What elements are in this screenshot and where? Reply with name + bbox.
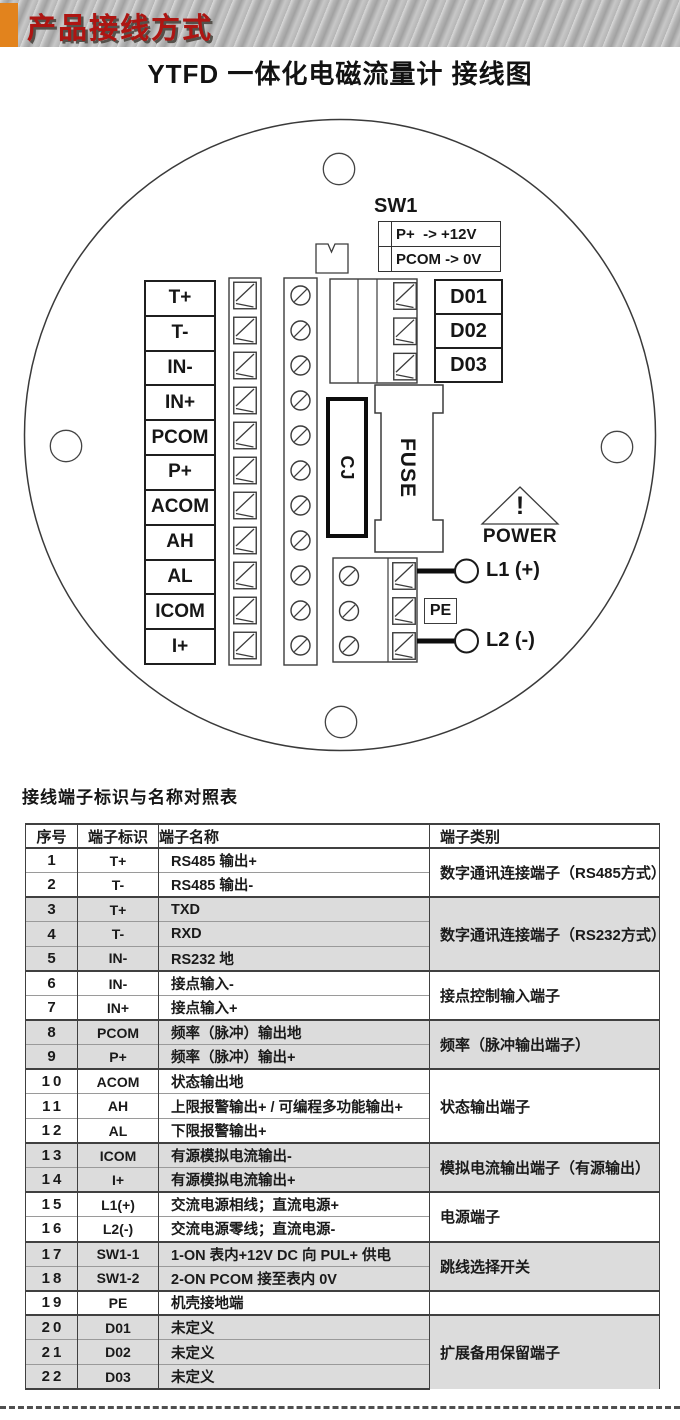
screw-terminal-icon (291, 496, 310, 515)
terminal-label: T+ (146, 282, 214, 315)
terminal-name-cell: 2-ON PCOM 接至表内 0V (159, 1266, 430, 1291)
row-number-cell: 12 (26, 1119, 78, 1144)
terminal-id-cell: L2(-) (78, 1217, 159, 1242)
row-number-cell: 9 (26, 1045, 78, 1070)
terminal-name-cell: 频率（脉冲）输出地 (159, 1020, 430, 1045)
terminal-name-cell: 未定义 (159, 1364, 430, 1389)
row-number-cell: 4 (26, 922, 78, 947)
terminal-id-cell: ACOM (78, 1069, 159, 1094)
terminal-category-cell: 扩展备用保留端子 (430, 1315, 660, 1389)
table-row: 10ACOM状态输出地状态输出端子 (26, 1069, 660, 1094)
sw1-legend-spacer (379, 247, 392, 271)
terminal-label: AH (146, 524, 214, 559)
terminal-label: IN- (146, 350, 214, 385)
row-number-cell: 20 (26, 1315, 78, 1340)
row-number-cell: 17 (26, 1242, 78, 1267)
clamp-contact-icon (393, 563, 416, 590)
table-row: 20D01未定义扩展备用保留端子 (26, 1315, 660, 1340)
clamp-contact-icon (394, 318, 417, 345)
terminal-name-cell: 交流电源相线；直流电源+ (159, 1192, 430, 1217)
table-row: 1T+RS485 输出+数字通讯连接端子（RS485方式） (26, 848, 660, 873)
terminal-label: IN+ (146, 384, 214, 419)
column-header: 端子类别 (430, 824, 660, 848)
clamp-contact-icon (234, 352, 257, 379)
l1-ring-terminal (455, 560, 478, 583)
mounting-hole-left (50, 430, 81, 461)
table-row: 19PE机壳接地端 (26, 1291, 660, 1316)
terminal-name-cell: 机壳接地端 (159, 1291, 430, 1316)
terminal-id-cell: PCOM (78, 1020, 159, 1045)
table-row: 17SW1-11-ON 表内+12V DC 向 PUL+ 供电跳线选择开关 (26, 1242, 660, 1267)
column-header: 端子标识 (78, 824, 159, 848)
cj-connector-label: CJ (337, 418, 357, 518)
terminal-name-cell: RS232 地 (159, 946, 430, 971)
terminal-name-cell: RS485 输出+ (159, 848, 430, 873)
l2-ring-terminal (455, 630, 478, 653)
clamp-contact-icon (234, 562, 257, 589)
terminal-name-cell: TXD (159, 897, 430, 922)
row-number-cell: 22 (26, 1364, 78, 1389)
relay-output-label-column: D01D02D03 (434, 279, 503, 383)
terminal-id-cell: D01 (78, 1315, 159, 1340)
sw1-legend-spacer (379, 222, 392, 246)
terminal-name-cell: 未定义 (159, 1340, 430, 1365)
terminal-name-cell: 1-ON 表内+12V DC 向 PUL+ 供电 (159, 1242, 430, 1267)
power-clamp-contacts (393, 563, 416, 660)
terminal-id-cell: IN- (78, 946, 159, 971)
clamp-contact-icon (234, 597, 257, 624)
column-header: 端子名称 (159, 824, 430, 848)
table-row: 8PCOM频率（脉冲）输出地频率（脉冲输出端子） (26, 1020, 660, 1045)
clamp-contact-icon (394, 353, 417, 380)
mounting-hole-right (601, 431, 632, 462)
terminal-id-cell: AH (78, 1094, 159, 1119)
row-number-cell: 7 (26, 996, 78, 1021)
sw1-legend-row: P+ -> +12V (379, 222, 500, 246)
screw-terminal-icon (291, 356, 310, 375)
terminal-id-cell: L1(+) (78, 1192, 159, 1217)
row-number-cell: 13 (26, 1143, 78, 1168)
screw-terminal-icon (291, 321, 310, 340)
table-row: 13ICOM有源模拟电流输出-模拟电流输出端子（有源输出） (26, 1143, 660, 1168)
terminal-category-cell: 状态输出端子 (430, 1069, 660, 1143)
clamp-contact-icon (234, 387, 257, 414)
sw1-legend-text: PCOM -> 0V (392, 251, 481, 268)
row-number-cell: 3 (26, 897, 78, 922)
screw-terminal-icon (291, 426, 310, 445)
terminal-id-cell: I+ (78, 1168, 159, 1193)
row-number-cell: 18 (26, 1266, 78, 1291)
row-number-cell: 11 (26, 1094, 78, 1119)
terminal-id-cell: D03 (78, 1364, 159, 1389)
table-heading: 接线端子标识与名称对照表 (22, 783, 238, 808)
fuse-label: FUSE (397, 400, 419, 536)
clamp-contact-icon (234, 632, 257, 659)
terminal-name-cell: 接点输入- (159, 971, 430, 996)
terminal-name-cell: 有源模拟电流输出- (159, 1143, 430, 1168)
terminal-name-cell: 上限报警输出+ / 可编程多功能输出+ (159, 1094, 430, 1119)
terminal-category-cell: 频率（脉冲输出端子） (430, 1020, 660, 1069)
screw-terminal-icon (291, 531, 310, 550)
terminal-id-cell: P+ (78, 1045, 159, 1070)
screw-terminal-icon (291, 391, 310, 410)
terminal-name-cell: RXD (159, 922, 430, 947)
terminal-category-cell: 电源端子 (430, 1192, 660, 1241)
row-number-cell: 6 (26, 971, 78, 996)
row-number-cell: 16 (26, 1217, 78, 1242)
sw1-legend-text: P+ -> +12V (392, 226, 476, 243)
terminal-id-cell: SW1-1 (78, 1242, 159, 1267)
terminal-category-cell: 接点控制输入端子 (430, 971, 660, 1020)
terminal-name-cell: 状态输出地 (159, 1069, 430, 1094)
terminal-id-cell: D02 (78, 1340, 159, 1365)
manual-page: 产品接线方式 YTFD 一体化电磁流量计 接线图 (0, 0, 680, 1420)
terminal-label: T- (146, 315, 214, 350)
relay-clamp-contacts (394, 283, 417, 380)
terminal-id-cell: T- (78, 873, 159, 898)
table-row: 6IN-接点输入-接点控制输入端子 (26, 971, 660, 996)
row-number-cell: 10 (26, 1069, 78, 1094)
clamp-contact-icon (393, 633, 416, 660)
screw-terminal-icon (291, 286, 310, 305)
column-header: 序号 (26, 824, 78, 848)
terminal-table: 序号端子标识端子名称端子类别1T+RS485 输出+数字通讯连接端子（RS485… (25, 823, 660, 1390)
l2-terminal-label: L2 (-) (486, 629, 535, 652)
terminal-id-cell: T+ (78, 897, 159, 922)
mounting-hole-bottom (325, 706, 356, 737)
terminal-name-cell: 频率（脉冲）输出+ (159, 1045, 430, 1070)
terminal-category-cell: 跳线选择开关 (430, 1242, 660, 1291)
terminal-id-cell: PE (78, 1291, 159, 1316)
terminal-name-cell: RS485 输出- (159, 873, 430, 898)
power-screw-terminals (340, 567, 359, 656)
terminal-category-cell: 模拟电流输出端子（有源输出） (430, 1143, 660, 1192)
clamp-contact-icon (234, 457, 257, 484)
terminal-label: AL (146, 559, 214, 594)
table-row: 3T+TXD数字通讯连接端子（RS232方式） (26, 897, 660, 922)
sw1-legend-row: PCOM -> 0V (379, 246, 500, 271)
terminal-label: P+ (146, 454, 214, 489)
screw-terminal-icon (340, 602, 359, 621)
terminal-label-column: T+T-IN-IN+PCOMP+ACOMAHALICOMI+ (144, 280, 216, 665)
screw-terminal-icon (291, 601, 310, 620)
terminal-name-cell: 交流电源零线；直流电源- (159, 1217, 430, 1242)
terminal-category-cell: 数字通讯连接端子（RS232方式） (430, 897, 660, 971)
screw-terminal-icon (291, 566, 310, 585)
screw-terminal-icon (291, 636, 310, 655)
terminal-label: I+ (146, 628, 214, 663)
screw-terminal-icon (291, 461, 310, 480)
terminal-label: ICOM (146, 593, 214, 628)
bottom-dashed-divider (0, 1406, 680, 1409)
clamp-contact-icon (393, 598, 416, 625)
row-number-cell: 2 (26, 873, 78, 898)
relay-output-label: D03 (436, 347, 501, 381)
terminal-id-cell: T+ (78, 848, 159, 873)
power-warning-label: POWER (478, 526, 562, 548)
terminal-name-cell: 下限报警输出+ (159, 1119, 430, 1144)
clamp-contacts (234, 282, 257, 659)
row-number-cell: 21 (26, 1340, 78, 1365)
row-number-cell: 15 (26, 1192, 78, 1217)
terminal-id-cell: T- (78, 922, 159, 947)
terminal-id-cell: IN- (78, 971, 159, 996)
terminal-label: ACOM (146, 489, 214, 524)
clamp-contact-icon (234, 492, 257, 519)
terminal-label: PCOM (146, 419, 214, 454)
clamp-contact-icon (234, 282, 257, 309)
row-number-cell: 5 (26, 946, 78, 971)
terminal-name-cell: 接点输入+ (159, 996, 430, 1021)
row-number-cell: 14 (26, 1168, 78, 1193)
table-row: 15L1(+)交流电源相线；直流电源+电源端子 (26, 1192, 660, 1217)
clamp-contact-icon (234, 317, 257, 344)
pe-terminal-label: PE (424, 598, 457, 624)
terminal-id-cell: IN+ (78, 996, 159, 1021)
row-number-cell: 1 (26, 848, 78, 873)
screw-terminal-icon (340, 567, 359, 586)
clamp-contact-icon (234, 422, 257, 449)
l1-terminal-label: L1 (+) (486, 559, 540, 582)
clamp-contact-icon (234, 527, 257, 554)
screw-terminal-icon (340, 637, 359, 656)
sw1-label: SW1 (374, 195, 417, 218)
terminal-category-cell: 数字通讯连接端子（RS485方式） (430, 848, 660, 897)
terminal-category-cell (430, 1291, 660, 1316)
row-number-cell: 8 (26, 1020, 78, 1045)
mounting-hole-top (323, 153, 354, 184)
terminal-name-cell: 未定义 (159, 1315, 430, 1340)
sw1-legend-table: P+ -> +12V PCOM -> 0V (378, 221, 501, 272)
terminal-id-cell: SW1-2 (78, 1266, 159, 1291)
terminal-id-cell: ICOM (78, 1143, 159, 1168)
warning-exclamation: ! (505, 492, 535, 521)
relay-output-label: D02 (436, 313, 501, 347)
terminal-id-cell: AL (78, 1119, 159, 1144)
terminal-name-cell: 有源模拟电流输出+ (159, 1168, 430, 1193)
row-number-cell: 19 (26, 1291, 78, 1316)
table-header-row: 序号端子标识端子名称端子类别 (26, 824, 660, 848)
clamp-contact-icon (394, 283, 417, 310)
relay-output-label: D01 (436, 281, 501, 313)
